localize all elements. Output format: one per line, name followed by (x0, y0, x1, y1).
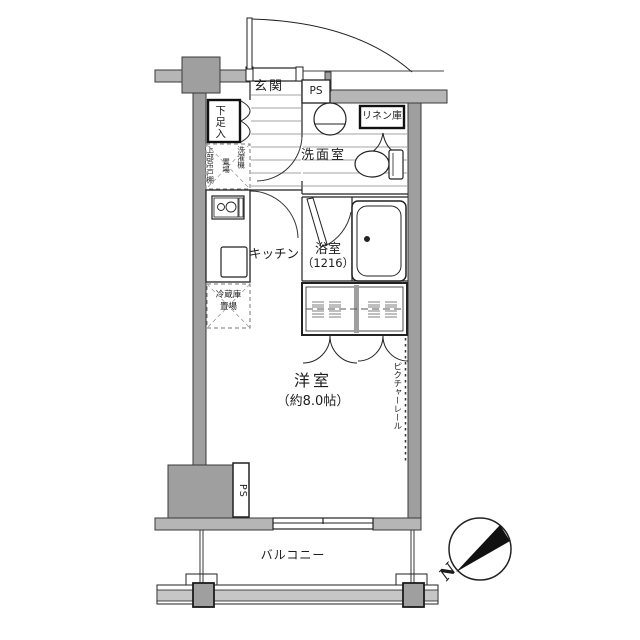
railing-post-right (403, 583, 424, 607)
entrance-door-swing-arc (252, 19, 412, 72)
toilet-bowl (355, 151, 389, 177)
label-balcony: バルコニー (253, 549, 333, 563)
label-kitchen: キッチン (249, 247, 299, 261)
railing-post-left (193, 583, 214, 607)
label-linen-closet: リネン庫 (360, 111, 404, 123)
kitchen-sink (221, 247, 247, 277)
kitchen-counter (206, 190, 250, 282)
washbasin (314, 103, 346, 135)
label-washroom: 洗面室 (301, 149, 346, 164)
door-jamb-right (296, 67, 303, 81)
toilet (355, 150, 403, 179)
label-bathroom-size: （1216） (300, 257, 356, 270)
label-main-room: 洋室 (273, 372, 353, 390)
label-ps-bottom: PS (236, 468, 247, 514)
linen-closet-doors (372, 133, 394, 152)
bathtub-drain (365, 237, 370, 242)
label-washer-place-2: 置場 (221, 158, 230, 188)
entrance-door-leaf (247, 18, 252, 69)
label-fridge-place-2: 置場 (207, 303, 250, 313)
label-main-room-size: （約8.0帖） (263, 395, 363, 410)
shoe-cabinet-folding-door (241, 101, 250, 142)
balcony-structure (157, 530, 438, 607)
floorplan-canvas: 玄関 PS 下足入 上部吊戸棚 置場 洗濯機 洗面室 リネン庫 キッチン 浴室 … (0, 0, 640, 640)
stove-burner-small (218, 204, 225, 211)
label-fridge-place-1: 冷蔵庫 (207, 291, 250, 301)
toilet-tank (389, 150, 403, 179)
label-washer-place-1: 洗濯機 (236, 146, 245, 188)
label-shoe-cabinet: 下足入 (214, 103, 226, 141)
label-upper-cabinet: 上部吊戸棚 (205, 146, 214, 188)
label-genkan: 玄関 (254, 80, 284, 95)
closet-folding-doors (303, 336, 408, 363)
hall-door-swing-arc (250, 191, 298, 238)
pillar-top-left (182, 57, 220, 93)
washroom-door-swing-arc (257, 136, 302, 181)
pillar-bottom-left (168, 465, 233, 518)
wall-bottom-left-band (155, 518, 273, 530)
stove-burner-large (226, 202, 236, 212)
bathtub (352, 201, 406, 281)
wall-top-right-band (330, 90, 447, 103)
label-picture-rail: ピクチャーレール (391, 362, 401, 446)
balcony-window (273, 518, 373, 529)
wall-right (408, 103, 421, 518)
wall-bottom-right-band (373, 518, 421, 530)
label-ps-top: PS (302, 85, 330, 97)
bathroom-door (307, 198, 351, 247)
